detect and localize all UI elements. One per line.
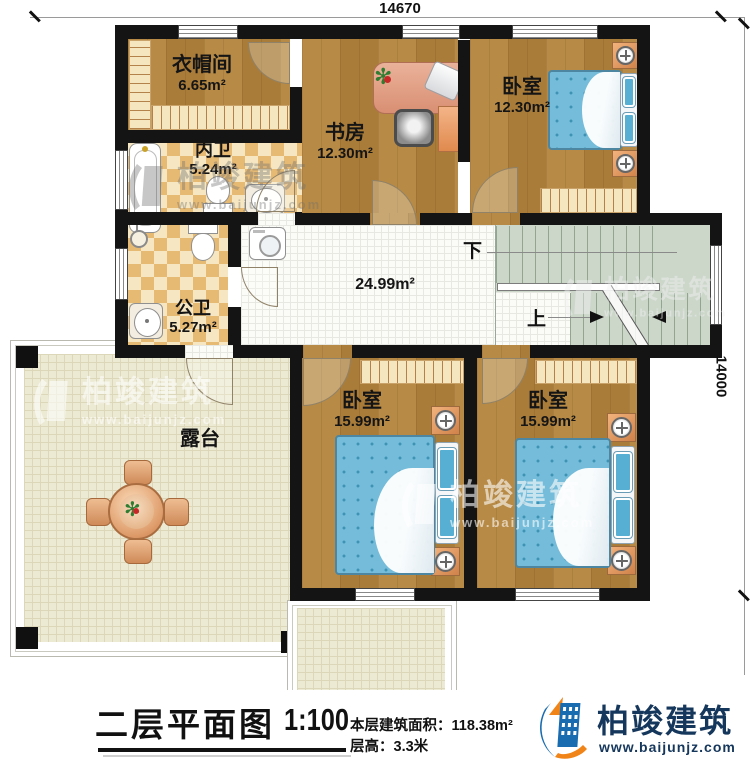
washer-panel [253,230,265,233]
plan-info: 本层建筑面积：118.38m² 层高：3.3米 [350,716,513,758]
window [115,150,128,210]
room-area: 6.65m² [152,77,252,94]
bed-top-blanket [582,72,620,148]
lamp-icon [616,46,635,65]
room-label-hallway: 24.99m² [330,276,440,294]
company-name: 柏竣建筑 [597,696,733,742]
room-name: 卧室 [312,390,412,413]
wall [415,588,515,601]
bathtub-faucet-icon [142,146,148,152]
room-area: 24.99m² [330,276,440,294]
chair [124,539,152,564]
window [115,248,128,300]
wall [530,345,722,358]
wall [420,213,472,225]
title-underline-shadow [103,755,351,757]
nightstand [431,547,460,576]
toilet-bowl [206,176,230,204]
lamp-icon [435,410,456,431]
title-underline [98,748,346,752]
wall [115,345,185,358]
room-area: 15.99m² [312,413,412,430]
wall [228,225,241,267]
stairs-arrow-left-icon [652,311,666,323]
lamp-icon [616,154,635,173]
lamp-icon [435,551,456,572]
pillow [623,77,635,107]
wall [290,357,302,601]
room-name: 公卫 [148,298,238,319]
window [178,25,238,39]
stairs-up-line [548,317,590,318]
stairs-down-label: 下 [463,236,482,263]
plan-title: 二层平面图 [95,698,275,746]
toilet-public-bath [188,224,218,262]
study-plant-flower-icon [384,76,391,83]
floor-opening-patch [482,345,530,358]
stairs-down-line [487,252,677,253]
window [710,245,722,325]
window [512,25,598,39]
dimension-line-top [30,17,745,18]
room-label-bedroom-left: 卧室 15.99m² [312,390,412,430]
wall [637,357,650,601]
room-name: 卧室 [498,390,598,413]
terrace-column [16,346,38,368]
table-flower-icon [133,508,139,514]
room-area: 12.30m² [472,99,572,116]
room-name: 内卫 [168,140,258,161]
room-name: 书房 [295,122,395,145]
room-label-bedroom-right: 卧室 15.99m² [498,390,598,430]
bedroom-left-wardrobe [360,360,464,384]
floor-height-text: 层高：3.3米 [350,737,513,758]
wall [290,588,355,601]
room-label-inner-bath: 内卫 5.24m² [168,140,258,178]
room-name: 露台 [165,428,235,451]
room-name: 卧室 [472,76,572,99]
wall [600,588,650,601]
room-label-cloakroom: 衣帽间 6.65m² [152,54,252,94]
plan-scale: 1:100 [284,702,349,738]
study-chair-monitor [394,109,434,147]
cloakroom-wardrobe-left [129,40,151,130]
wall [352,345,482,358]
washing-machine [249,227,286,260]
stairs-up-label: 上 [527,304,546,331]
window [355,588,415,601]
wall [128,212,258,225]
floor-plan-canvas: 下 上 ✻ [0,0,750,767]
chair [124,460,152,485]
terrace-column [16,627,38,649]
wall [464,357,477,601]
stairs-hall-divider [495,225,496,345]
floor-opening-patch [303,345,352,358]
title-block: 二层平面图 1:100 本层建筑面积：118.38m² 层高：3.3米 柏竣建筑… [0,690,750,767]
floor-opening-patch [185,345,233,358]
wall [295,212,302,225]
room-area: 15.99m² [498,413,598,430]
chair [164,498,189,526]
lamp-icon [611,550,632,571]
stairs-handrail [497,283,660,291]
bedroom-top-wardrobe [540,188,637,213]
pillow [614,498,632,538]
lamp-icon [611,417,632,438]
pillow [614,452,632,492]
stairs-upper-treads [496,226,659,283]
nightstand [612,150,639,177]
shower-head-icon [130,230,148,248]
room-area: 5.27m² [148,319,238,336]
toilet-bowl [191,233,215,261]
balcony-floor [297,608,445,698]
bedroom-right-wardrobe [535,360,637,384]
pillow [438,448,456,490]
cloakroom-wardrobe-bottom [151,105,290,130]
room-label-bedroom-top: 卧室 12.30m² [472,76,572,116]
wall [637,25,650,225]
stairs-arrow-right-icon [590,311,604,323]
pillow [623,113,635,143]
room-label-public-bath: 公卫 5.27m² [148,298,238,336]
nightstand [431,406,460,435]
wall [302,213,370,225]
company-logo-icon [533,694,593,762]
floor-opening-patch [258,213,295,225]
company-website: www.baijunjz.com [599,739,736,755]
nightstand [607,413,636,442]
wall [710,213,722,245]
room-area: 5.24m² [168,161,258,178]
wall [458,40,470,162]
wall [520,213,722,225]
dimension-line-right [744,17,745,675]
floor-opening-patch [472,213,520,225]
dimension-right-value: 14000 [713,332,730,422]
washer-door-icon [259,235,281,257]
room-name: 衣帽间 [152,54,252,77]
window [515,588,600,601]
dimension-top-value: 14670 [345,0,455,17]
pillow [438,496,456,538]
window [402,25,460,39]
room-label-terrace: 露台 [165,428,235,451]
toilet-inner-bath [203,176,233,214]
floor-area-text: 本层建筑面积：118.38m² [350,716,513,737]
nightstand [607,546,636,575]
room-label-study: 书房 12.30m² [295,122,395,162]
room-area: 12.30m² [295,145,395,162]
nightstand [612,42,639,69]
